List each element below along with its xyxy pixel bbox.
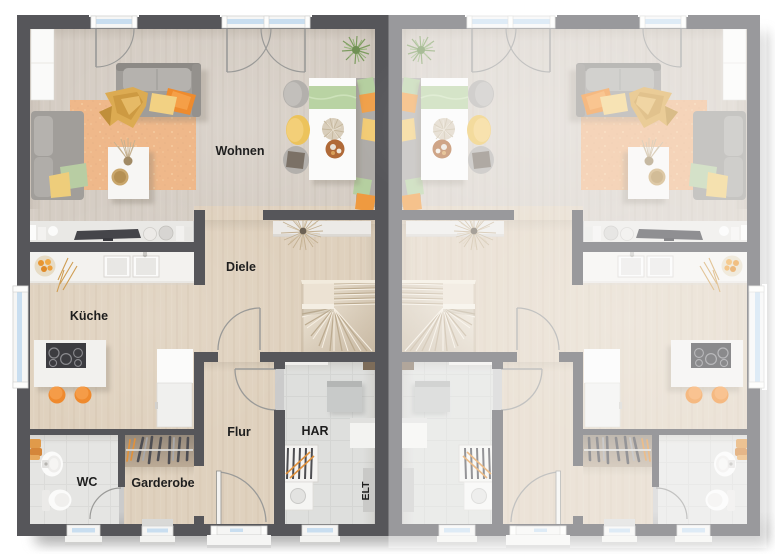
svg-text:Flur: Flur [227, 425, 251, 439]
svg-text:HAR: HAR [301, 424, 328, 438]
svg-text:Diele: Diele [226, 260, 256, 274]
svg-text:Küche: Küche [70, 309, 108, 323]
svg-text:ELT: ELT [360, 481, 372, 501]
svg-text:WC: WC [77, 475, 98, 489]
svg-text:Wohnen: Wohnen [215, 144, 264, 158]
svg-text:Garderobe: Garderobe [131, 476, 194, 490]
